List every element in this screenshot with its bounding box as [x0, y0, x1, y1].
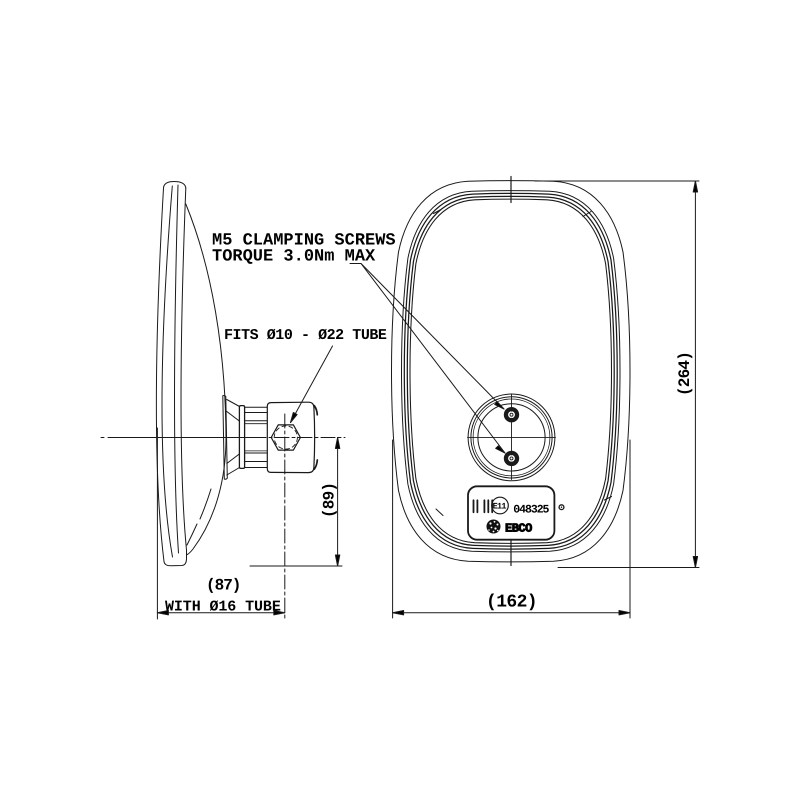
svg-text:(162): (162) [486, 593, 537, 613]
svg-text:048325: 048325 [513, 503, 549, 516]
svg-text:(89): (89) [321, 483, 339, 518]
svg-text:(264): (264) [676, 352, 694, 396]
svg-text:FITS Ø10 - Ø22 TUBE: FITS Ø10 - Ø22 TUBE [224, 327, 387, 344]
svg-text:E11: E11 [493, 502, 507, 512]
svg-text:TORQUE 3.0Nm MAX: TORQUE 3.0Nm MAX [212, 248, 376, 267]
svg-text:WITH Ø16 TUBE: WITH Ø16 TUBE [165, 599, 281, 616]
svg-text:EBCO: EBCO [505, 522, 532, 536]
svg-text:(87): (87) [206, 577, 240, 595]
